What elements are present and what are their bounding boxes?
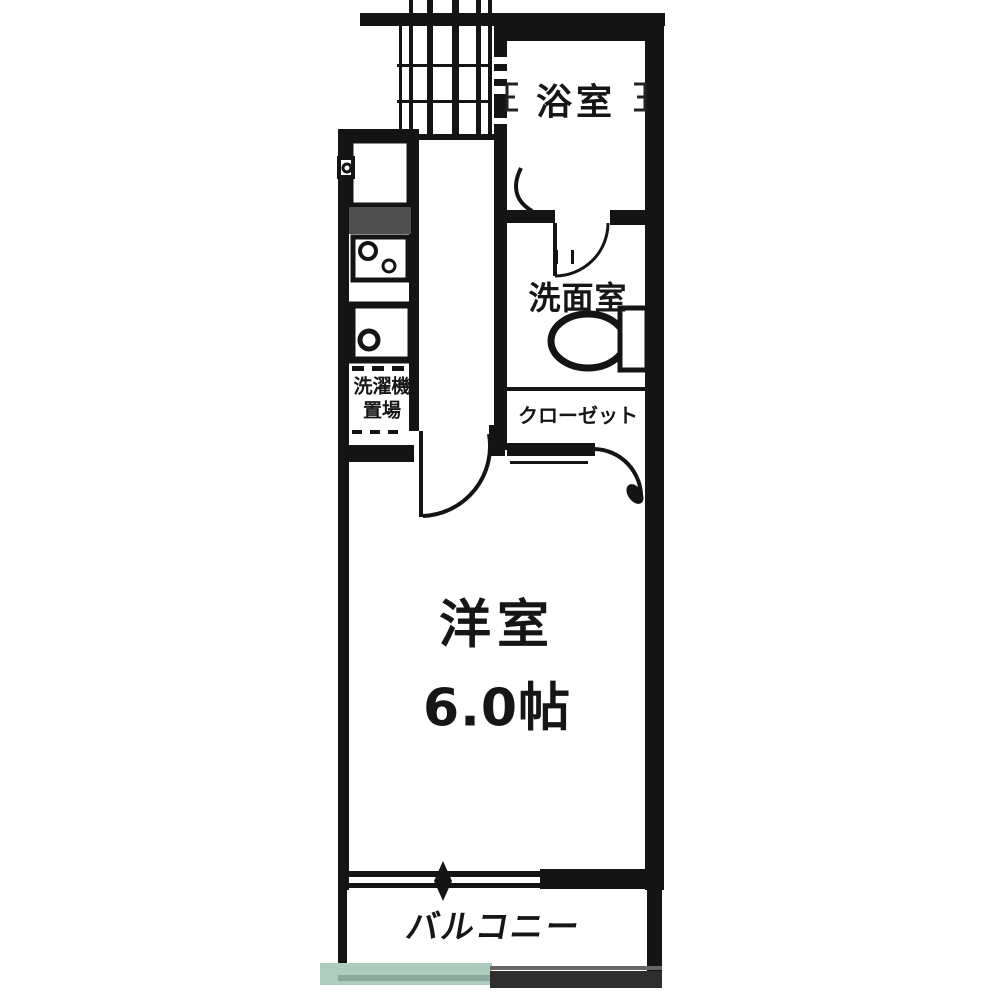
hatch-band — [349, 207, 411, 234]
washroom-label: 洗面室 — [528, 273, 627, 319]
western-room-label: 洋室 — [439, 583, 555, 658]
floor-plan: 浴室 洗面室 クローゼット 洗濯機 置場 洋室 6.0帖 バルコニー — [0, 0, 1000, 1000]
laundry-space-label-line1: 洗濯機 — [353, 375, 410, 397]
western-room-size-label: 6.0帖 — [423, 666, 571, 741]
closet-door-arc-icon — [594, 449, 647, 507]
balcony-label: バルコニー — [403, 900, 586, 948]
balcony-window — [338, 861, 664, 901]
window-center-marker-icon — [434, 861, 452, 901]
floor-plan-drawing — [0, 0, 1000, 1000]
closet-label: クローゼット — [518, 400, 638, 429]
bath-room-label: 浴室 — [536, 73, 616, 125]
laundry-space-label-line2: 置場 — [363, 399, 401, 421]
counter-icon — [339, 140, 410, 206]
laundry-space-label: 洗濯機 置場 — [342, 375, 422, 423]
kitchen-sink-icon — [353, 237, 408, 280]
stove-icon — [352, 305, 411, 360]
room-door-arc-icon — [419, 431, 490, 517]
